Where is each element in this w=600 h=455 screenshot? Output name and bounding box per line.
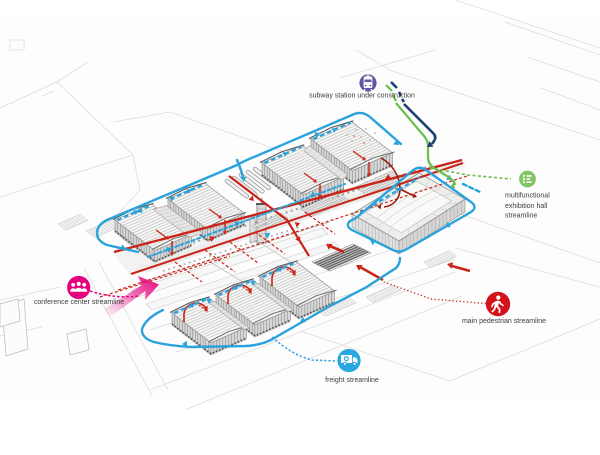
svg-text:multifunctional: multifunctional	[505, 193, 550, 200]
svg-text:conference center streamline: conference center streamline	[34, 299, 124, 306]
svg-text:streamline: streamline	[505, 213, 537, 220]
svg-text:main pedestrian streamline: main pedestrian streamline	[462, 318, 546, 325]
svg-text:exhibition hall: exhibition hall	[505, 203, 548, 210]
svg-text:freight streamline: freight streamline	[325, 377, 379, 384]
svg-text:subway station under construct: subway station under construction	[309, 93, 415, 100]
